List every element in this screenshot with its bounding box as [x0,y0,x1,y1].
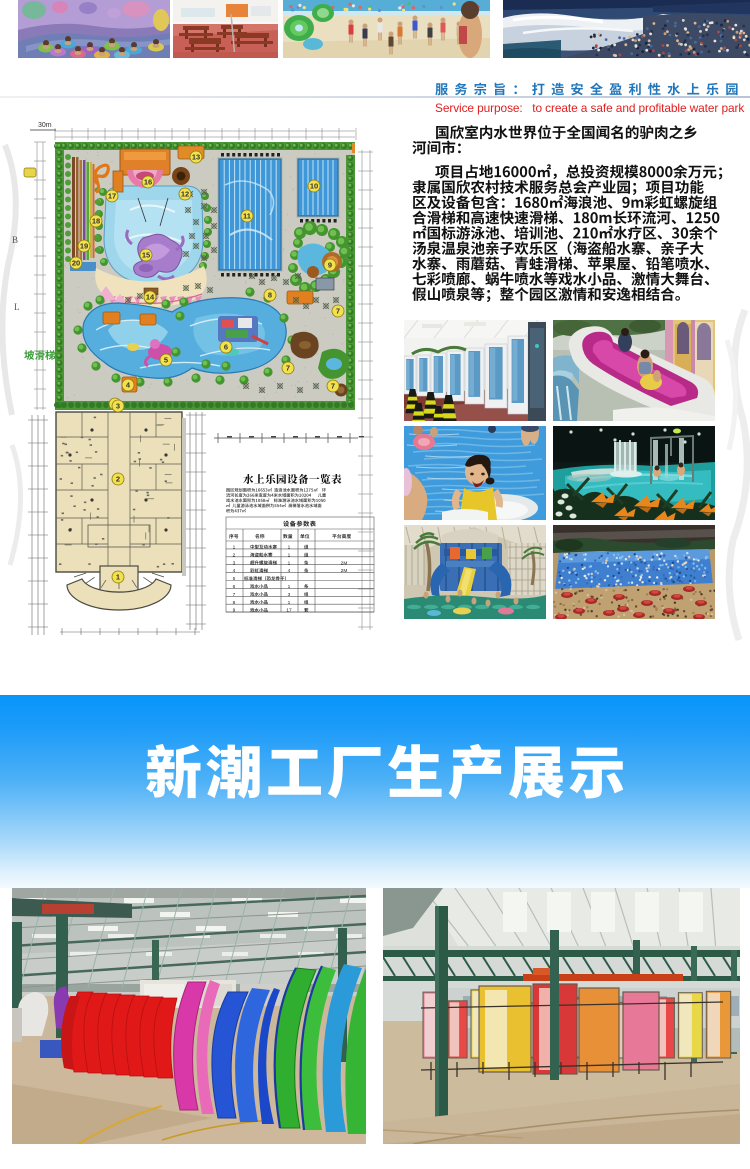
svg-text:12: 12 [181,190,189,199]
svg-text:1: 1 [288,545,291,551]
svg-text:18: 18 [92,217,100,226]
svg-text:1: 1 [233,545,236,551]
svg-text:6: 6 [224,343,228,352]
svg-text:5: 5 [233,576,236,582]
svg-text:20: 20 [72,259,80,268]
svg-text:L: L [14,302,20,312]
svg-text:17: 17 [286,608,292,614]
svg-text:1: 1 [288,600,291,606]
svg-text:13: 13 [192,153,200,162]
svg-text:14: 14 [146,293,155,302]
svg-text:6: 6 [233,584,236,590]
svg-text:2M: 2M [341,568,348,574]
svg-text:1: 1 [288,552,291,558]
svg-text:B: B [12,235,18,245]
svg-text:4: 4 [233,568,236,574]
svg-text:2: 2 [233,552,236,558]
svg-text:15: 15 [142,251,150,260]
svg-text:4: 4 [288,568,291,574]
svg-text:5: 5 [164,356,168,365]
svg-text:9: 9 [328,261,332,270]
svg-text:1: 1 [288,584,291,590]
svg-text:7: 7 [286,364,290,373]
svg-text:2M: 2M [341,560,348,566]
svg-text:9: 9 [233,608,236,614]
svg-text:7: 7 [336,307,340,316]
svg-text:16: 16 [144,178,152,187]
svg-text:3: 3 [288,592,291,598]
svg-text:19: 19 [80,242,88,251]
svg-text:1: 1 [116,573,120,582]
svg-text:8: 8 [268,291,272,300]
svg-text:11: 11 [243,212,251,221]
svg-text:3: 3 [233,560,236,566]
svg-text:30m: 30m [38,122,52,129]
svg-text:3: 3 [116,402,120,411]
svg-text:7: 7 [331,382,335,391]
svg-text:2: 2 [116,475,120,484]
svg-text:17: 17 [108,192,116,201]
svg-text:1: 1 [288,560,291,566]
svg-text:10: 10 [310,182,318,191]
svg-text:7: 7 [233,592,236,598]
svg-text:8: 8 [233,600,236,606]
